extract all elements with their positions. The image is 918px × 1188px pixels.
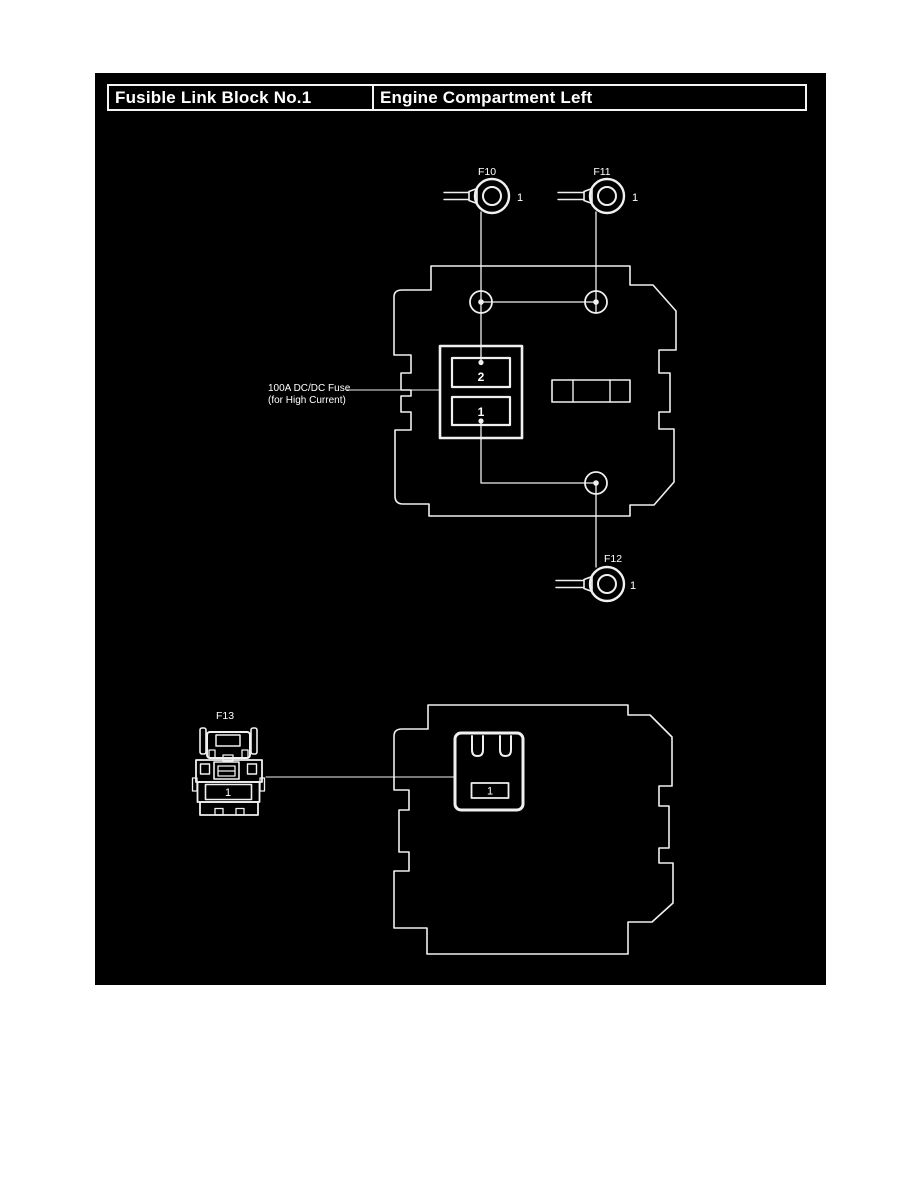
f13-prong-right [251, 728, 257, 754]
f10-ring-outer [475, 179, 509, 213]
socket-slot-right [500, 736, 511, 756]
f13-top-housing [207, 732, 250, 758]
f12-ring-inner [598, 575, 616, 593]
connector-strip-body [552, 380, 630, 402]
f13-base-notch-left [215, 809, 223, 816]
wire-line-slot1-to-hole [481, 421, 596, 483]
upper-block-outline [394, 266, 676, 516]
f11-label: F11 [593, 166, 610, 178]
fuse-note-line2: (for High Current) [268, 395, 346, 406]
socket-slot-left [472, 736, 483, 756]
f13-pin-number: 1 [225, 787, 231, 799]
f13-base-notch-right [236, 809, 244, 816]
upper-fusible-link-block: F10 1 F11 1 F12 1 [268, 166, 676, 601]
f13-socket: 1 [455, 733, 523, 810]
f13-base [200, 802, 258, 815]
fuse-slot-2-number: 2 [478, 370, 485, 384]
f11-ring-inner [598, 187, 616, 205]
f10-pin-number: 1 [517, 192, 523, 204]
f10-ring-terminal: F10 1 [444, 166, 523, 213]
f11-pin-number: 1 [632, 192, 638, 204]
f10-label: F10 [478, 166, 496, 178]
manual-page: Fusible Link Block No.1 Engine Compartme… [0, 0, 918, 1188]
connector-strip [552, 380, 630, 402]
f12-ring-outer [590, 567, 624, 601]
f13-prong-left [200, 728, 206, 754]
f12-pin-number: 1 [630, 580, 636, 592]
fuse-note: 100A DC/DC Fuse (for High Current) [268, 383, 440, 406]
socket-pin-number: 1 [487, 786, 493, 798]
fuse-slot-1-contact-dot [478, 418, 483, 423]
fuse-note-line1: 100A DC/DC Fuse [268, 383, 351, 394]
lower-fusible-link-block: 1 F13 1 [193, 705, 674, 954]
f13-foot-left [209, 750, 215, 758]
f12-label: F12 [604, 553, 622, 565]
f13-mid-square-right [248, 764, 257, 774]
f13-connector: F13 1 [193, 710, 265, 815]
fuse-slot-1-number: 1 [478, 405, 485, 419]
diagram-canvas: F10 1 F11 1 F12 1 [0, 0, 918, 1188]
f13-mid-square-left [201, 764, 210, 774]
f13-foot-right [242, 750, 248, 758]
lower-block-outline [394, 705, 673, 954]
f11-ring-terminal: F11 1 [558, 166, 638, 213]
f11-ring-outer [590, 179, 624, 213]
f10-ring-inner [483, 187, 501, 205]
f13-top-tab [216, 735, 240, 746]
fuse-slot-2-contact-dot [478, 360, 483, 365]
f13-label: F13 [216, 710, 234, 722]
